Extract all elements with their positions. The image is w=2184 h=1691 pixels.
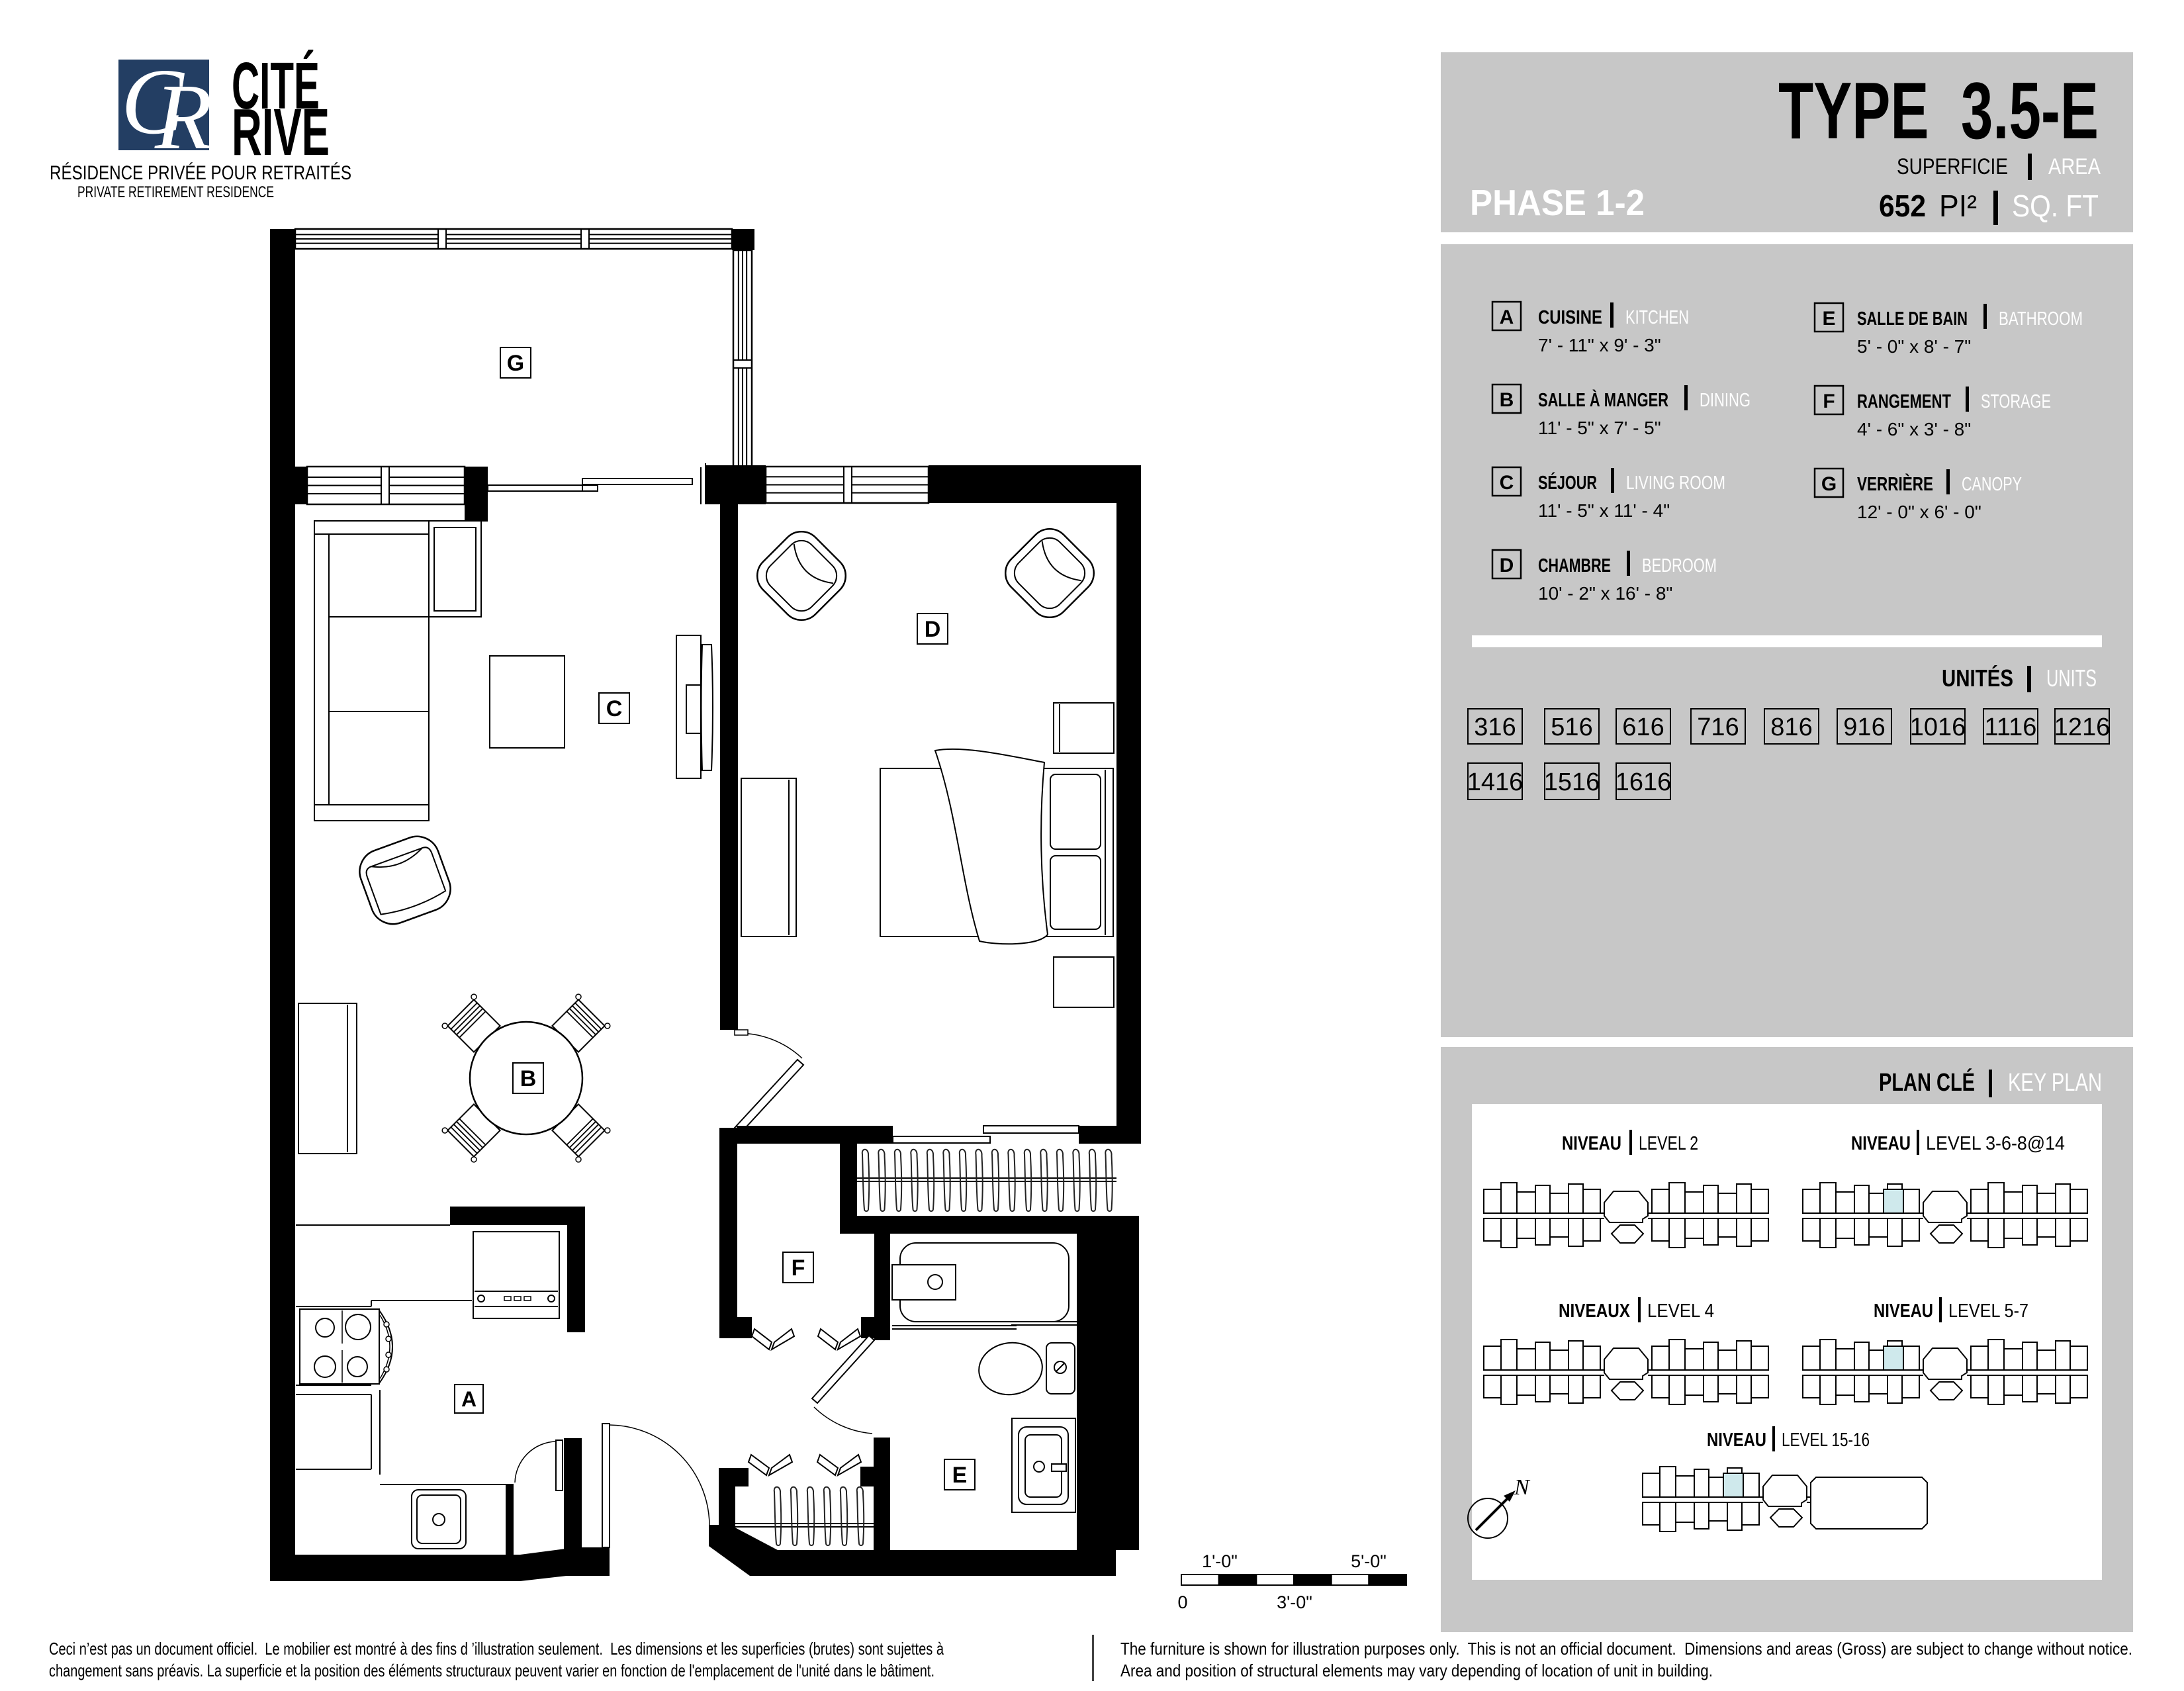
svg-text:NIVEAU: NIVEAU: [1707, 1430, 1766, 1451]
svg-text:KEY PLAN: KEY PLAN: [2008, 1069, 2102, 1097]
svg-text:PI²: PI²: [1939, 189, 1977, 223]
svg-text:CHAMBRE: CHAMBRE: [1538, 555, 1611, 576]
svg-text:The furniture is shown for ill: The furniture is shown for illustration …: [1120, 1639, 2132, 1659]
svg-text:UNITÉS: UNITÉS: [1942, 664, 2013, 692]
svg-text:SALLE À MANGER: SALLE À MANGER: [1538, 388, 1668, 411]
svg-text:NIVEAUX: NIVEAUX: [1559, 1301, 1631, 1322]
svg-text:616: 616: [1622, 713, 1664, 741]
svg-text:Ceci n’est pas un document off: Ceci n’est pas un document officiel. Le …: [49, 1639, 944, 1659]
svg-text:1416: 1416: [1467, 768, 1524, 796]
svg-text:G: G: [507, 351, 524, 376]
svg-text:D: D: [925, 617, 941, 642]
svg-text:C: C: [1500, 472, 1514, 494]
svg-text:A: A: [461, 1387, 477, 1411]
svg-text:0: 0: [1177, 1592, 1187, 1612]
svg-text:12' - 0" x 6' - 0": 12' - 0" x 6' - 0": [1857, 502, 1981, 522]
svg-text:716: 716: [1697, 713, 1739, 741]
svg-text:KITCHEN: KITCHEN: [1625, 307, 1689, 328]
svg-text:4' - 6" x 3' - 8": 4' - 6" x 3' - 8": [1857, 419, 1971, 439]
svg-text:516: 516: [1551, 713, 1592, 741]
svg-text:5' - 0" x 8' - 7": 5' - 0" x 8' - 7": [1857, 336, 1971, 357]
svg-text:LEVEL 15-16: LEVEL 15-16: [1782, 1430, 1870, 1451]
svg-text:changement sans préavis. La su: changement sans préavis. La superficie e…: [49, 1661, 934, 1680]
svg-text:F: F: [1823, 390, 1835, 412]
svg-text:LEVEL 2: LEVEL 2: [1639, 1133, 1698, 1154]
svg-text:G: G: [1821, 473, 1837, 495]
svg-text:10' - 2" x 16' - 8": 10' - 2" x 16' - 8": [1538, 583, 1672, 604]
svg-text:B: B: [520, 1066, 537, 1091]
svg-text:SÉJOUR: SÉJOUR: [1538, 471, 1597, 494]
svg-text:LEVEL 5-7: LEVEL 5-7: [1948, 1301, 2028, 1322]
svg-text:7' - 11" x 9' - 3": 7' - 11" x 9' - 3": [1538, 335, 1661, 355]
svg-text:1216: 1216: [2054, 713, 2111, 741]
svg-text:C: C: [606, 696, 623, 721]
svg-text:D: D: [1500, 555, 1514, 576]
svg-text:SUPERFICIE: SUPERFICIE: [1897, 154, 2008, 179]
svg-text:816: 816: [1770, 713, 1812, 741]
svg-text:PRIVATE RETIREMENT RESIDENCE: PRIVATE RETIREMENT RESIDENCE: [77, 183, 274, 201]
svg-text:PHASE 1-2: PHASE 1-2: [1470, 182, 1645, 223]
svg-text:1616: 1616: [1615, 768, 1672, 796]
svg-text:SALLE DE BAIN: SALLE DE BAIN: [1857, 308, 1968, 330]
svg-text:RANGEMENT: RANGEMENT: [1857, 391, 1951, 412]
svg-text:5'-0": 5'-0": [1351, 1551, 1387, 1571]
svg-text:SQ. FT: SQ. FT: [2012, 189, 2099, 223]
svg-text:1516: 1516: [1544, 768, 1600, 796]
svg-text:916: 916: [1843, 713, 1885, 741]
svg-text:A: A: [1500, 306, 1514, 328]
svg-text:NIVEAU: NIVEAU: [1874, 1301, 1933, 1322]
svg-text:NIVEAU: NIVEAU: [1851, 1133, 1911, 1154]
svg-text:DINING: DINING: [1700, 390, 1751, 411]
svg-text:F: F: [792, 1256, 805, 1281]
svg-text:NIVEAU: NIVEAU: [1562, 1133, 1621, 1154]
svg-text:11' - 5" x 11' - 4": 11' - 5" x 11' - 4": [1538, 500, 1670, 521]
svg-text:RÉSIDENCE PRIVÉE POUR RETRAITÉ: RÉSIDENCE PRIVÉE POUR RETRAITÉS: [50, 162, 351, 184]
svg-text:LIVING ROOM: LIVING ROOM: [1626, 473, 1725, 494]
svg-text:N: N: [1514, 1475, 1531, 1500]
svg-text:PLAN CLÉ: PLAN CLÉ: [1879, 1068, 1975, 1097]
svg-text:TYPE 3.5-E: TYPE 3.5-E: [1778, 66, 2099, 156]
svg-text:CUISINE: CUISINE: [1538, 307, 1602, 328]
svg-text:AREA: AREA: [2048, 154, 2101, 179]
svg-text:11' - 5" x 7' - 5": 11' - 5" x 7' - 5": [1538, 418, 1661, 438]
svg-text:RIVE: RIVE: [232, 95, 330, 169]
svg-text:E: E: [952, 1463, 968, 1488]
svg-text:UNITS: UNITS: [2046, 664, 2097, 692]
svg-text:LEVEL 4: LEVEL 4: [1647, 1301, 1714, 1322]
svg-text:BATHROOM: BATHROOM: [1999, 308, 2083, 330]
svg-text:Area and position of structura: Area and position of structural elements…: [1120, 1661, 1713, 1680]
svg-text:1'-0": 1'-0": [1202, 1551, 1238, 1571]
svg-text:BEDROOM: BEDROOM: [1642, 555, 1717, 576]
svg-text:LEVEL 3-6-8@14: LEVEL 3-6-8@14: [1926, 1133, 2065, 1154]
svg-text:316: 316: [1474, 713, 1516, 741]
svg-text:B: B: [1500, 389, 1514, 411]
svg-text:CANOPY: CANOPY: [1962, 474, 2022, 495]
svg-text:R: R: [154, 64, 212, 169]
svg-text:3'-0": 3'-0": [1277, 1592, 1312, 1612]
svg-text:VERRIÈRE: VERRIÈRE: [1857, 473, 1933, 495]
svg-text:1116: 1116: [1985, 713, 2037, 741]
svg-text:STORAGE: STORAGE: [1981, 391, 2051, 412]
svg-text:652: 652: [1879, 189, 1926, 223]
svg-text:1016: 1016: [1910, 713, 1966, 741]
svg-text:E: E: [1822, 308, 1835, 330]
